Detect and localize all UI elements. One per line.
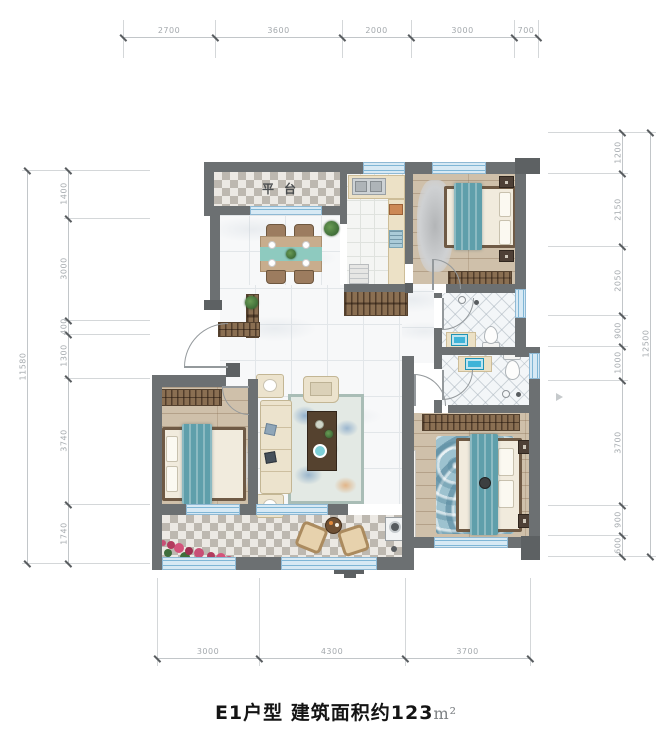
dim-label: 1000 [614, 343, 623, 383]
bedroom2-blanket [182, 424, 212, 504]
sofa-side-table-top [263, 379, 277, 392]
bedroom3-pillow [498, 448, 514, 476]
bedroom3-wardrobe [422, 414, 520, 431]
dim-label: 1300 [60, 336, 69, 376]
wall-kitchen-bottom [344, 284, 408, 292]
dim-label: 12500 [642, 324, 651, 364]
dining-plate [302, 259, 310, 267]
coffee-table-decor [313, 444, 327, 458]
dimension-extension [64, 563, 150, 564]
dimension-line [123, 37, 538, 38]
wall-left-lower [152, 375, 162, 570]
balcony-table-cup [329, 521, 333, 525]
window-kitchen [363, 162, 405, 174]
pillar-balcony-center-step [344, 572, 356, 578]
dining-chair [294, 270, 314, 284]
dim-label: 3740 [60, 421, 69, 461]
bedroom2-pillow [166, 436, 178, 462]
dining-plate [268, 241, 276, 249]
dim-label: 3000 [188, 647, 228, 656]
pillar-kitchen-right [405, 283, 413, 293]
wall-bathroom-lower-bottom [448, 405, 540, 413]
window-bedroom2 [186, 504, 240, 515]
wall-bathroom-upper-left-a [434, 293, 442, 298]
floorplan-page: 平台 E1户型 建筑面积约123m² 270036002000300070030… [0, 0, 672, 747]
bedroom2-wardrobe [158, 389, 222, 406]
kitchen-sink-basin [370, 181, 382, 192]
bedroom1-pillow [499, 220, 511, 245]
dining-plate [302, 241, 310, 249]
dimension-extension [64, 320, 150, 321]
bedroom1-nightstand [499, 176, 514, 188]
bedroom3-ceiling-fan [479, 477, 491, 489]
dimension-extension [64, 334, 150, 335]
entry-door-arc [184, 323, 228, 367]
kitchen-sink-basin [355, 181, 367, 192]
wall-right-upper [515, 162, 526, 357]
balcony-table [325, 517, 342, 534]
bathroom-upper-toilet [484, 326, 498, 344]
dining-plate [268, 259, 276, 267]
dimension-line [157, 658, 530, 659]
wall-west-mid [210, 206, 220, 308]
sofa-pillow [264, 451, 277, 464]
dimension-extension [548, 173, 628, 174]
plan-title-text: E1户型 建筑面积约123 [215, 702, 433, 724]
wall-bathrooms-divider [434, 347, 530, 355]
window-bathroom-upper [515, 289, 526, 318]
bedroom1-blanket [454, 183, 482, 250]
wall-platform-top [204, 162, 348, 172]
bedroom3-pillow [498, 480, 514, 508]
coffee-table-decor [315, 420, 324, 429]
armchair-cushion [310, 382, 332, 396]
dim-label: 4300 [312, 647, 352, 656]
bathroom-upper-drain [474, 300, 479, 305]
bedroom1-pillow [499, 192, 511, 217]
wall-bedroom2-right [248, 379, 258, 515]
dim-label: 2150 [614, 189, 623, 229]
dim-label: 3700 [614, 422, 623, 462]
hallway-sideboard [344, 291, 408, 316]
dimension-extension [64, 504, 150, 505]
window-bathroom-lower [529, 353, 540, 379]
bedroom1-nightstand [499, 250, 514, 262]
balcony-table-cup [335, 523, 339, 527]
bedroom3-door-leaf [414, 374, 416, 406]
dimension-extension [157, 578, 158, 666]
dim-label: 3000 [443, 26, 483, 35]
dim-label: 2050 [614, 260, 623, 300]
window-dining [250, 206, 322, 215]
wall-kitchen-left [340, 162, 347, 224]
plan-title: E1户型 建筑面积约123m² [0, 698, 672, 725]
pillar-top-right [515, 158, 540, 174]
window-balcony-left [162, 557, 236, 570]
wall-kitchen-right [405, 162, 413, 264]
wall-bedroom3-left [402, 356, 414, 512]
pillar-right-ledge [521, 536, 540, 560]
balcony-drain [391, 546, 397, 552]
sofa-pillow [264, 423, 277, 436]
dining-centerpiece-plant [286, 249, 296, 259]
bedroom2-door-leaf [222, 386, 249, 388]
bathroom-lower-toilet [505, 360, 520, 380]
bathroom-upper-sink [452, 335, 467, 345]
bedroom1-door-leaf [432, 259, 434, 290]
dim-label: 3600 [259, 26, 299, 35]
plan-title-unit: m² [433, 704, 457, 723]
bathroom-lower-sink [466, 359, 483, 369]
washing-machine-drum [389, 521, 401, 533]
dimension-extension [548, 246, 628, 247]
dim-label: 2000 [357, 26, 397, 35]
dimension-extension [530, 578, 531, 666]
window-living-balcony [256, 504, 328, 515]
bathroom-lower-drain [516, 392, 521, 397]
kitchen-hob [389, 204, 403, 215]
window-bedroom1 [432, 162, 486, 174]
dimension-extension [64, 378, 150, 379]
dim-label: 1400 [60, 174, 69, 214]
platform-label: 平台 [262, 180, 306, 197]
dim-label: 600 [614, 525, 623, 565]
marker-arrow-icon [556, 393, 563, 401]
dimension-extension [64, 170, 150, 171]
sofa [260, 400, 292, 494]
dim-label: 11580 [19, 346, 28, 386]
window-balcony-right [281, 557, 377, 570]
dim-label: 1200 [614, 132, 623, 172]
bathroom-lower-shower-head [502, 390, 510, 398]
window-bedroom3 [434, 537, 508, 548]
wall-bathroom-lower-left-a [434, 355, 442, 369]
pillar-entry [226, 363, 240, 377]
pillar-west-cap [204, 300, 222, 310]
dimension-extension [259, 578, 260, 666]
dim-label: 2700 [149, 26, 189, 35]
bedroom2-pillow [166, 466, 178, 492]
dim-label: 1740 [60, 513, 69, 553]
dimension-extension [405, 578, 406, 666]
kitchen-shelf [349, 264, 369, 284]
dimension-extension [64, 218, 150, 219]
wall-balcony-right [402, 510, 414, 570]
bathroom-upper-door-leaf [442, 298, 444, 329]
coffee-table-plant [325, 430, 333, 438]
dim-label: 700 [506, 26, 546, 35]
kitchen-dish-rack [389, 230, 403, 248]
entry-plant [245, 296, 258, 309]
dim-label: 3700 [448, 647, 488, 656]
wall-bedroom2-top [152, 375, 226, 387]
entry-door-leaf [184, 366, 228, 368]
dim-label: 3000 [60, 249, 69, 289]
dining-plant [324, 221, 339, 236]
dining-chair [266, 270, 286, 284]
